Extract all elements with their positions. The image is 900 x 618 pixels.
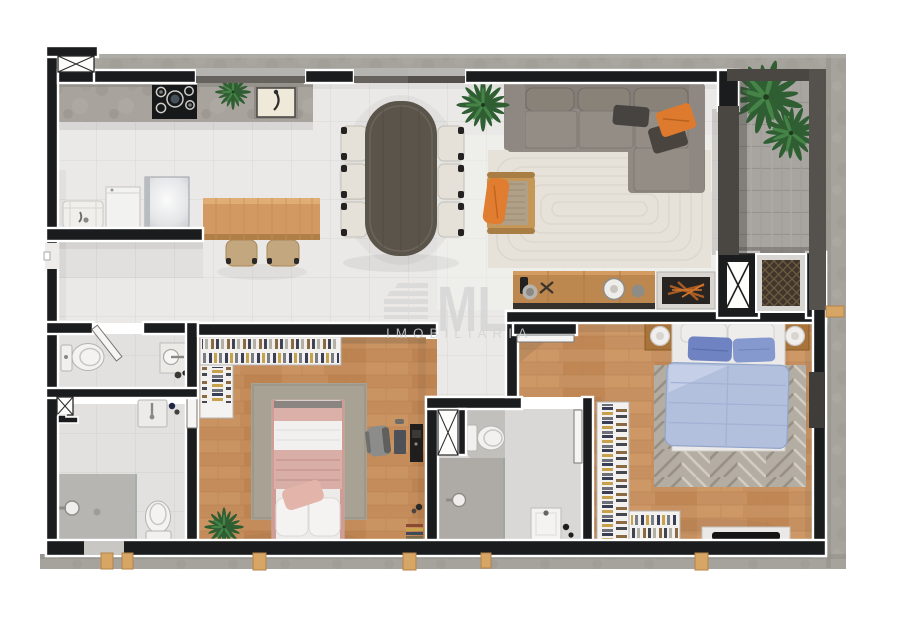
svg-text:IMOBILIÁRIA: IMOBILIÁRIA (386, 326, 533, 341)
